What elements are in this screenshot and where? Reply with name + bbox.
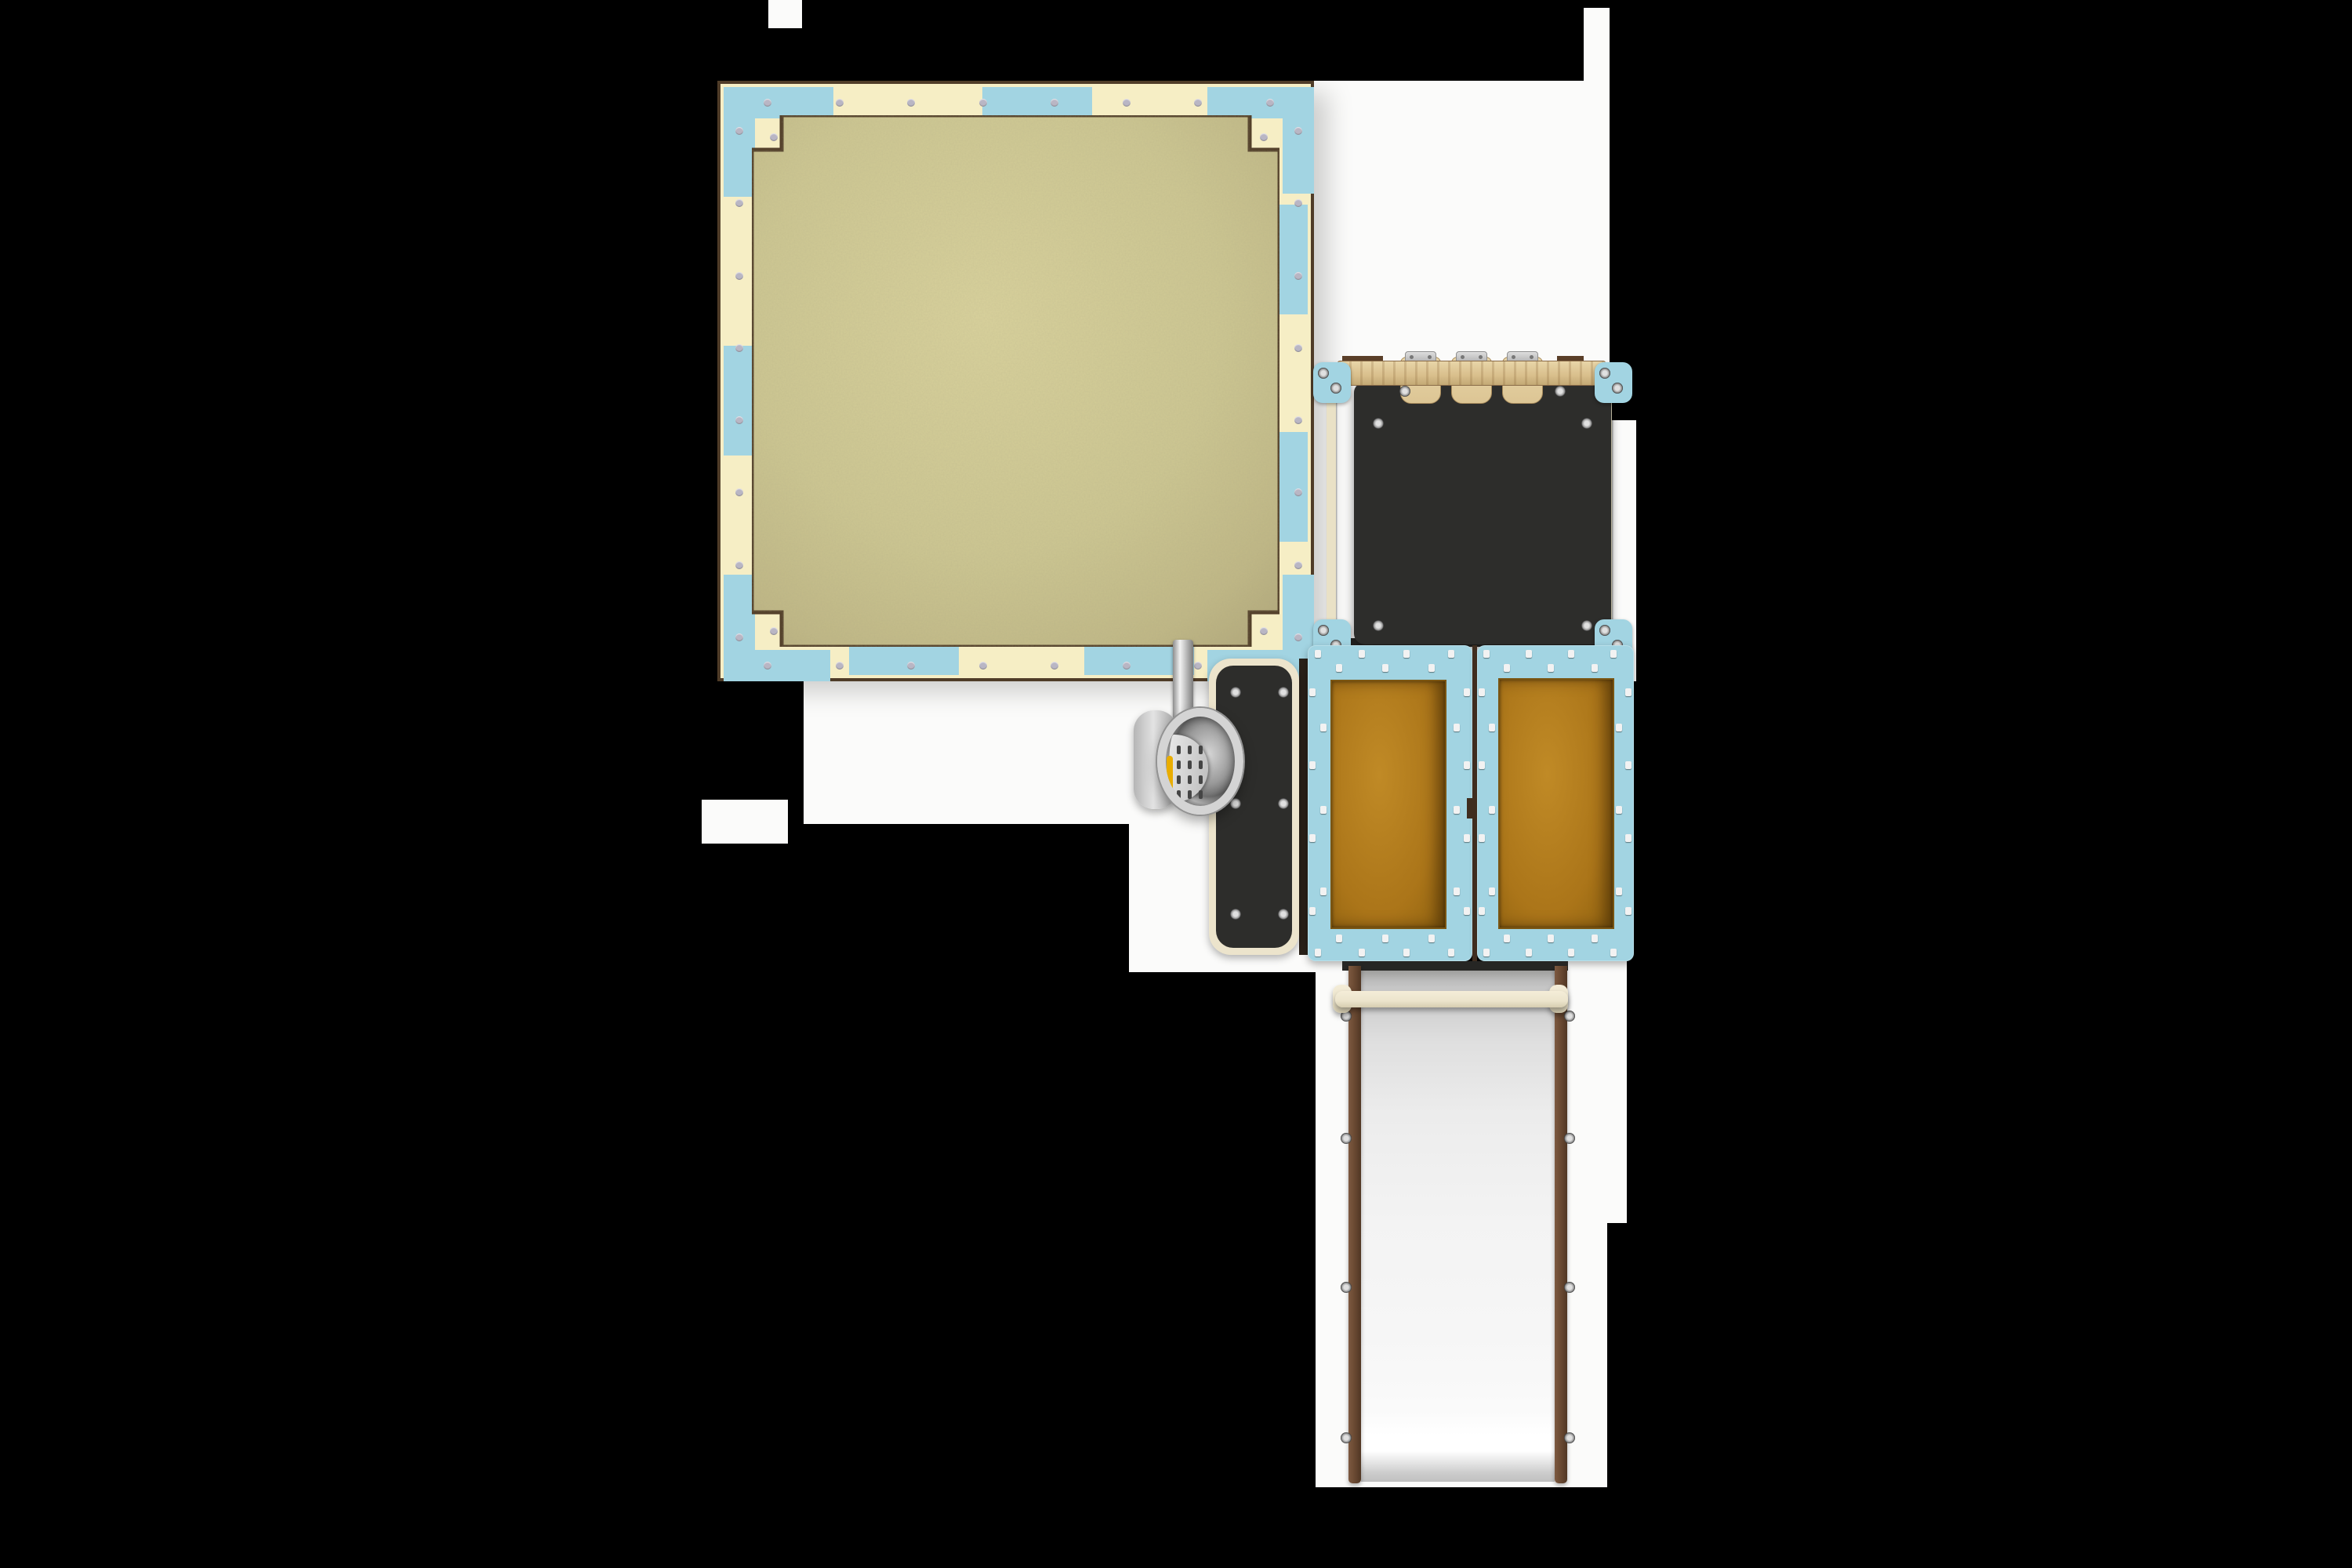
plate-rivet xyxy=(1428,355,1432,359)
speaker-hole xyxy=(1188,775,1192,784)
frame-pin xyxy=(1548,664,1554,672)
screw xyxy=(1294,561,1302,569)
panel-screw xyxy=(1230,909,1241,920)
speaker-hole xyxy=(1188,790,1192,799)
top-beam xyxy=(1338,361,1606,386)
frame-pin xyxy=(1403,650,1410,658)
screw xyxy=(1123,99,1131,107)
screw xyxy=(1294,272,1302,280)
panel-screw xyxy=(1278,687,1289,698)
slide-rail-left xyxy=(1348,966,1361,1483)
panel-screw xyxy=(1278,798,1289,809)
frame-pin xyxy=(1464,907,1470,915)
frame-pin xyxy=(1359,949,1365,956)
frame-pin xyxy=(1548,935,1554,942)
speaker-hole xyxy=(1177,775,1181,784)
frame-pin xyxy=(1309,834,1316,842)
plate-rivet xyxy=(1410,355,1414,359)
corner-bracket xyxy=(1595,362,1632,403)
frame-pin xyxy=(1479,834,1485,842)
panel-screw xyxy=(1581,620,1592,631)
frame-pin xyxy=(1309,761,1316,769)
frame-pin xyxy=(1504,664,1510,672)
frame-pin xyxy=(1428,935,1435,942)
frame-pin xyxy=(1489,724,1495,731)
frame-pin xyxy=(1625,834,1632,842)
screw xyxy=(764,99,771,107)
frame-pin xyxy=(1315,650,1321,658)
rail-screw xyxy=(1564,1282,1575,1293)
frame-pin xyxy=(1568,650,1574,658)
climbing-wall-panel xyxy=(1354,382,1611,644)
rail-screw xyxy=(1341,1282,1352,1293)
frame-pin xyxy=(1428,664,1435,672)
frame-gap-jog xyxy=(1467,798,1477,818)
bracket-screw xyxy=(1599,368,1610,379)
slide-rail-right xyxy=(1555,966,1567,1483)
frame-pin xyxy=(1483,949,1490,956)
talk-tube-accent xyxy=(1167,756,1173,795)
frame-pin xyxy=(1309,907,1316,915)
panel-screw xyxy=(1230,798,1241,809)
speaker-hole xyxy=(1199,775,1203,784)
screw xyxy=(735,633,743,641)
frame-pin xyxy=(1483,650,1490,658)
bracket-screw xyxy=(1318,625,1329,636)
frame-pin xyxy=(1336,935,1342,942)
corner-plank xyxy=(724,575,755,681)
screw xyxy=(979,662,987,670)
speaker-hole xyxy=(1199,746,1203,754)
corner-plank xyxy=(724,87,755,194)
support-post xyxy=(1327,392,1336,633)
frame-pin xyxy=(1616,724,1622,731)
speaker-hole xyxy=(1177,760,1181,769)
frame-pin xyxy=(1382,935,1388,942)
bracket-screw xyxy=(1318,368,1329,379)
sand-surface xyxy=(752,115,1279,647)
frame-pin xyxy=(1625,907,1632,915)
frame-pin xyxy=(1526,949,1532,956)
panel-screw xyxy=(1278,909,1289,920)
frame-pin xyxy=(1309,688,1316,696)
rail-screw xyxy=(1341,1432,1352,1443)
panel-screw xyxy=(1230,687,1241,698)
frame-pin xyxy=(1315,949,1321,956)
frame-pin xyxy=(1625,761,1632,769)
frame-pin xyxy=(1464,834,1470,842)
speaker-hole xyxy=(1177,790,1181,799)
frame-pin xyxy=(1464,688,1470,696)
speaker-hole xyxy=(1199,760,1203,769)
frame-pin xyxy=(1568,949,1574,956)
ground-patch xyxy=(768,0,802,28)
frame-pin xyxy=(1592,664,1598,672)
corner-bracket xyxy=(1313,362,1351,403)
bracket-screw xyxy=(1330,383,1341,394)
screw xyxy=(735,344,743,352)
frame-pin xyxy=(1359,650,1365,658)
speaker-hole xyxy=(1177,746,1181,754)
screw xyxy=(764,662,771,670)
speaker-hole xyxy=(1188,760,1192,769)
frame-pin xyxy=(1320,724,1327,731)
screw xyxy=(1294,344,1302,352)
screw xyxy=(735,127,743,135)
render-canvas xyxy=(0,0,2352,1568)
screw xyxy=(735,561,743,569)
frame-pin xyxy=(1454,806,1460,814)
panel-side-edge xyxy=(1299,659,1308,955)
frame-pin xyxy=(1479,907,1485,915)
frame-pin xyxy=(1610,949,1617,956)
screw xyxy=(1123,662,1131,670)
slide-platform-edge xyxy=(1342,961,1568,971)
slide-surface xyxy=(1361,971,1555,1482)
frame-pin xyxy=(1382,664,1388,672)
speaker-hole xyxy=(1199,790,1203,799)
frame-pin xyxy=(1504,935,1510,942)
screw xyxy=(1266,99,1274,107)
frame-pin xyxy=(1592,935,1598,942)
frame-pin xyxy=(1489,806,1495,814)
frame-pin xyxy=(1320,806,1327,814)
frame-pin xyxy=(1448,650,1454,658)
frame-pin xyxy=(1464,761,1470,769)
panel-screw xyxy=(1399,386,1410,397)
frame-pin xyxy=(1616,887,1622,895)
talk-tube-speaker-plate xyxy=(1169,735,1208,802)
rail-screw xyxy=(1564,1011,1575,1022)
panel-screw xyxy=(1555,386,1566,397)
talk-tube-ring xyxy=(1157,708,1243,815)
ground-patch xyxy=(702,800,788,844)
window-glass xyxy=(1498,678,1614,929)
panel-screw xyxy=(1373,620,1384,631)
frame-pin xyxy=(1616,806,1622,814)
frame-pin xyxy=(1526,650,1532,658)
frame-pin xyxy=(1454,887,1460,895)
window-glass xyxy=(1330,680,1446,929)
plate-rivet xyxy=(1479,355,1483,359)
ground-patch xyxy=(804,681,1142,824)
window-panel-right xyxy=(1477,645,1634,961)
bracket-screw xyxy=(1599,625,1610,636)
panel-screw xyxy=(1581,418,1592,429)
speaker-hole xyxy=(1188,746,1192,754)
frame-pin xyxy=(1336,664,1342,672)
talk-tube-pole xyxy=(1173,640,1193,720)
frame-pin xyxy=(1479,688,1485,696)
screw xyxy=(1294,127,1302,135)
frame-pin xyxy=(1479,761,1485,769)
frame-pin xyxy=(1625,688,1632,696)
sandbox xyxy=(717,81,1314,681)
screw xyxy=(735,272,743,280)
panel-screw xyxy=(1373,418,1384,429)
frame-pin xyxy=(1320,887,1327,895)
bracket-screw xyxy=(1612,383,1623,394)
screw xyxy=(1294,633,1302,641)
frame-pin xyxy=(1448,949,1454,956)
screw xyxy=(836,99,844,107)
rail-screw xyxy=(1564,1432,1575,1443)
plate-rivet xyxy=(1512,355,1515,359)
rail-screw xyxy=(1564,1133,1575,1144)
plate-rivet xyxy=(1530,355,1534,359)
screw xyxy=(979,99,987,107)
frame-pin xyxy=(1610,650,1617,658)
slide-safety-bar xyxy=(1335,991,1568,1007)
rail-screw xyxy=(1341,1133,1352,1144)
corner-plank xyxy=(1283,87,1314,194)
frame-pin xyxy=(1489,887,1495,895)
frame-pin xyxy=(1454,724,1460,731)
window-panel-left xyxy=(1308,645,1472,961)
screw xyxy=(836,662,844,670)
frame-pin xyxy=(1403,949,1410,956)
plate-rivet xyxy=(1461,355,1465,359)
